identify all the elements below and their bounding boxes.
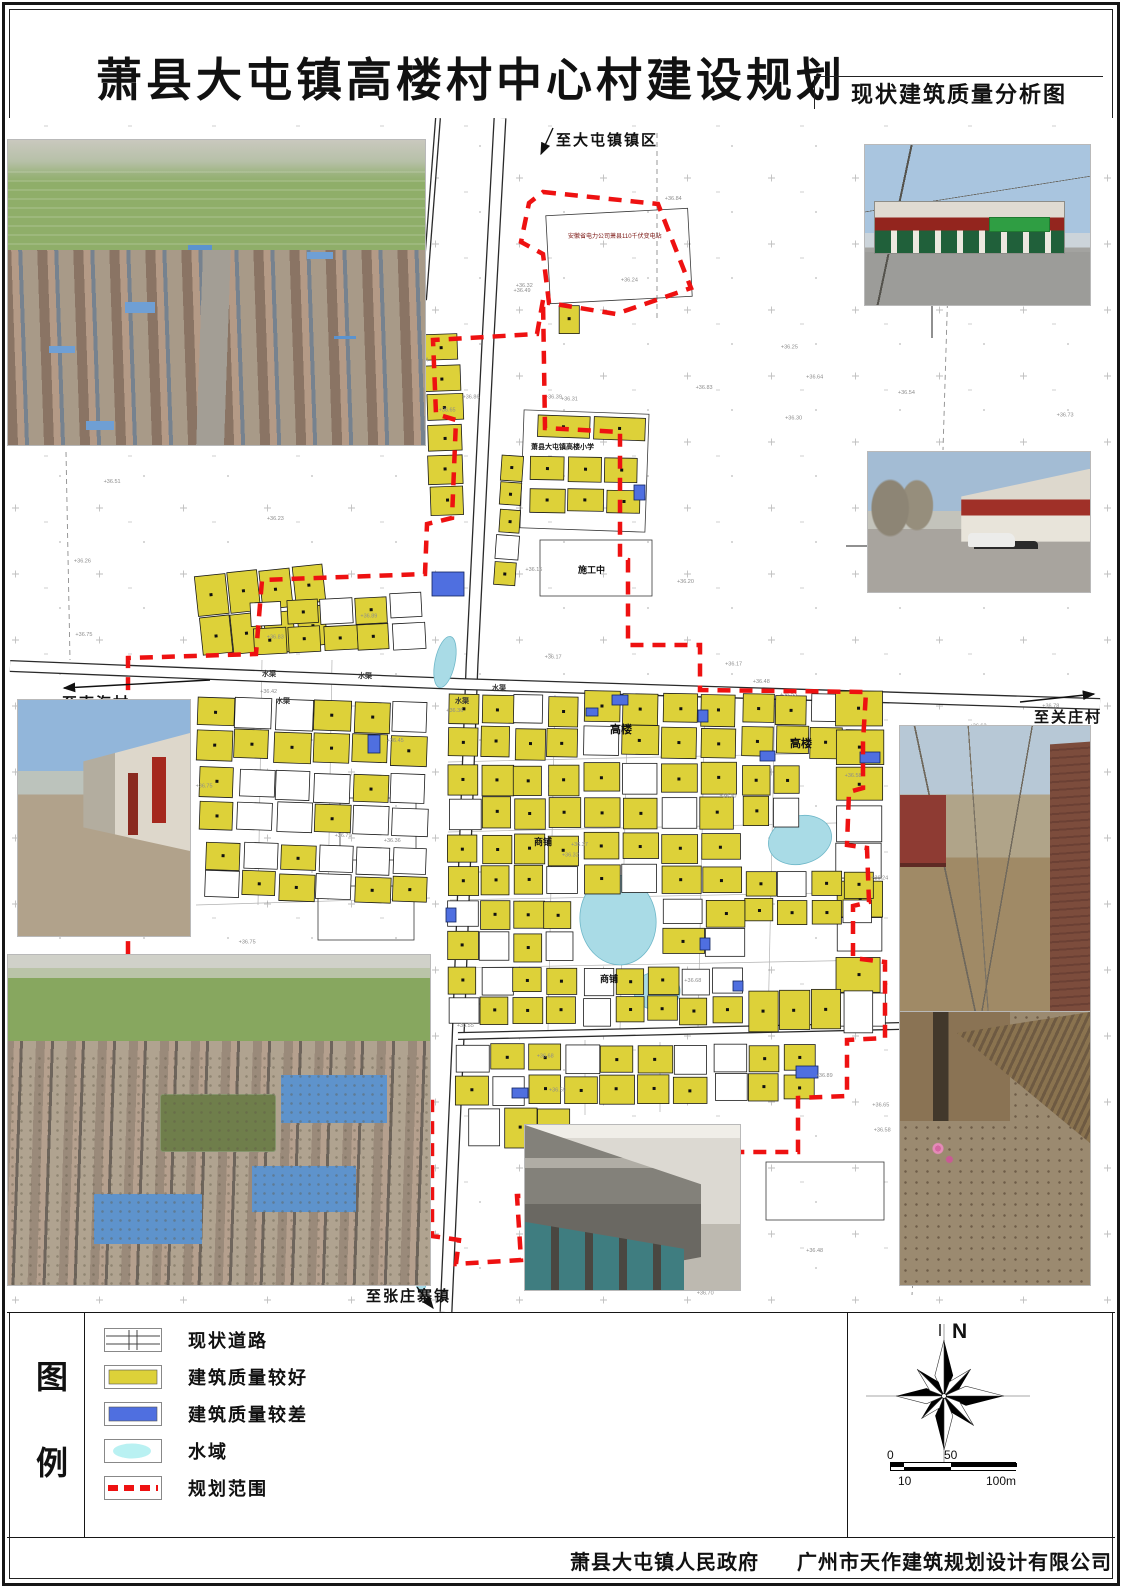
svg-text:+36.70: +36.70 bbox=[697, 1291, 714, 1297]
svg-text:+36.42: +36.42 bbox=[260, 689, 277, 695]
svg-text:水渠: 水渠 bbox=[262, 669, 277, 678]
north-label: N bbox=[952, 1320, 967, 1344]
legend-item-boundary: 规划范围 bbox=[104, 1474, 524, 1502]
legend-items: 现状道路建筑质量较好建筑质量较差水域规划范围 bbox=[104, 1326, 524, 1511]
scale-bar-segments bbox=[890, 1462, 1016, 1471]
legend-symbol-road bbox=[104, 1328, 162, 1352]
svg-text:+36.75: +36.75 bbox=[196, 783, 213, 789]
svg-text:安徽省电力公司萧县110千伏变电站: 安徽省电力公司萧县110千伏变电站 bbox=[568, 232, 662, 240]
svg-text:+36.30: +36.30 bbox=[719, 793, 736, 799]
svg-text:+36.49: +36.49 bbox=[514, 288, 531, 294]
legend-item-water: 水域 bbox=[104, 1437, 524, 1465]
svg-text:+36.17: +36.17 bbox=[545, 654, 562, 660]
svg-text:+36.64: +36.64 bbox=[806, 374, 823, 380]
svg-text:+36.83: +36.83 bbox=[696, 385, 713, 391]
svg-text:+36.30: +36.30 bbox=[785, 415, 802, 421]
compass-rose bbox=[848, 1318, 1048, 1466]
svg-text:+36.54: +36.54 bbox=[898, 390, 915, 396]
svg-text:+36.23: +36.23 bbox=[267, 516, 284, 522]
svg-text:水渠: 水渠 bbox=[492, 683, 507, 692]
legend-band-top-line bbox=[7, 1312, 1115, 1313]
svg-text:+36.65: +36.65 bbox=[872, 1103, 889, 1109]
svg-text:+36.36: +36.36 bbox=[384, 838, 401, 844]
svg-text:至张庄寨镇: 至张庄寨镇 bbox=[366, 1287, 451, 1305]
legend-item-road: 现状道路 bbox=[104, 1326, 524, 1354]
sheet-subtitle: 现状建筑质量分析图 bbox=[851, 77, 1067, 109]
svg-text:+36.89: +36.89 bbox=[816, 1073, 833, 1079]
svg-text:+36.58: +36.58 bbox=[874, 1128, 891, 1134]
svg-text:+36.48: +36.48 bbox=[806, 1248, 823, 1254]
svg-text:+36.25: +36.25 bbox=[781, 344, 798, 350]
legend-label-good: 建筑质量较好 bbox=[188, 1364, 308, 1390]
scale-bar: 0 50 10 100m bbox=[890, 1448, 1020, 1488]
svg-text:至关庄村: 至关庄村 bbox=[1034, 708, 1102, 726]
svg-text:+36.37: +36.37 bbox=[571, 842, 588, 848]
svg-text:+36.36: +36.36 bbox=[446, 708, 463, 714]
scale-segment bbox=[891, 1467, 904, 1471]
svg-text:施工中: 施工中 bbox=[578, 564, 605, 575]
svg-text:+36.73: +36.73 bbox=[1057, 412, 1074, 418]
svg-text:商铺: 商铺 bbox=[600, 973, 618, 984]
svg-text:+36.68: +36.68 bbox=[684, 978, 701, 984]
svg-text:+36.20: +36.20 bbox=[677, 579, 694, 585]
photo-street-market-west bbox=[18, 700, 190, 936]
svg-text:+36.39: +36.39 bbox=[545, 394, 562, 400]
scale-segment bbox=[904, 1467, 951, 1471]
svg-text:至大屯镇镇区: 至大屯镇镇区 bbox=[556, 131, 658, 149]
scale-50: 50 bbox=[944, 1448, 957, 1462]
subtitle-box: 现状建筑质量分析图 bbox=[814, 76, 1103, 109]
scale-10: 10 bbox=[898, 1474, 911, 1488]
footer-government-name: 萧县大屯镇人民政府 bbox=[570, 1546, 759, 1575]
svg-text:水渠: 水渠 bbox=[358, 671, 373, 680]
svg-text:+36.24: +36.24 bbox=[871, 875, 888, 881]
legend-label-water: 水域 bbox=[188, 1438, 228, 1464]
scale-0: 0 bbox=[887, 1448, 894, 1462]
legend-title-divider bbox=[84, 1312, 85, 1537]
photo-aerial-village-pond bbox=[8, 955, 430, 1285]
photo-alley-trees bbox=[900, 726, 1090, 1012]
footer-design-firm-name: 广州市天作建筑规划设计有限公司 bbox=[797, 1546, 1112, 1575]
svg-text:+36.75: +36.75 bbox=[239, 939, 256, 945]
page-title: 萧县大屯镇高楼村中心村建设规划 bbox=[96, 44, 846, 110]
legend-char-tu: 图 bbox=[26, 1352, 78, 1398]
svg-text:+36.83: +36.83 bbox=[267, 634, 284, 640]
legend-item-poor: 建筑质量较差 bbox=[104, 1400, 524, 1428]
svg-text:水渠: 水渠 bbox=[276, 696, 291, 705]
photo-street-shops-north bbox=[865, 145, 1090, 305]
legend-item-good: 建筑质量较好 bbox=[104, 1363, 524, 1391]
photo-warehouse-row bbox=[525, 1125, 740, 1290]
svg-text:+36.51: +36.51 bbox=[104, 479, 121, 485]
svg-text:+36.48: +36.48 bbox=[753, 679, 770, 685]
svg-text:+36.58: +36.58 bbox=[845, 773, 862, 779]
svg-text:+36.84: +36.84 bbox=[665, 196, 682, 202]
svg-text:+36.16: +36.16 bbox=[525, 567, 542, 573]
photo-street-shops-east bbox=[868, 452, 1090, 592]
legend-symbol-poor bbox=[104, 1402, 162, 1426]
svg-text:+36.55: +36.55 bbox=[457, 1023, 474, 1029]
svg-text:+36.75: +36.75 bbox=[75, 632, 92, 638]
legend-symbol-boundary bbox=[104, 1476, 162, 1500]
legend-symbol-water bbox=[104, 1439, 162, 1463]
svg-text:水渠: 水渠 bbox=[455, 696, 470, 705]
svg-text:+36.59: +36.59 bbox=[549, 1088, 566, 1094]
plan-sheet: 萧县大屯镇高楼村中心村建设规划 现状建筑质量分析图 +36.74+36.32+3… bbox=[0, 0, 1122, 1588]
svg-text:+36.68: +36.68 bbox=[537, 1054, 554, 1060]
svg-text:+36.89: +36.89 bbox=[360, 614, 377, 620]
footer-bar: 萧县大屯镇人民政府 广州市天作建筑规划设计有限公司 bbox=[7, 1537, 1115, 1578]
legend-symbol-good bbox=[104, 1365, 162, 1389]
svg-text:+36.24: +36.24 bbox=[621, 278, 638, 284]
svg-text:+36.26: +36.26 bbox=[74, 558, 91, 564]
svg-text:商铺: 商铺 bbox=[534, 836, 552, 847]
svg-text:+36.32: +36.32 bbox=[562, 853, 579, 859]
legend-char-li: 例 bbox=[26, 1438, 78, 1484]
photo-ruined-house bbox=[900, 1012, 1090, 1285]
photo-aerial-main-street bbox=[8, 140, 425, 445]
svg-text:萧县大屯镇高楼小学: 萧县大屯镇高楼小学 bbox=[531, 442, 594, 451]
svg-text:+36.17: +36.17 bbox=[725, 662, 742, 668]
legend-label-poor: 建筑质量较差 bbox=[188, 1401, 308, 1427]
svg-text:+36.86: +36.86 bbox=[463, 394, 480, 400]
legend-label-road: 现状道路 bbox=[188, 1327, 268, 1353]
scale-segment bbox=[951, 1467, 1017, 1471]
legend-label-boundary: 规划范围 bbox=[188, 1475, 268, 1501]
scale-100m: 100m bbox=[986, 1474, 1016, 1488]
svg-text:+36.31: +36.31 bbox=[561, 396, 578, 402]
svg-text:高楼: 高楼 bbox=[790, 736, 812, 750]
svg-text:高楼: 高楼 bbox=[610, 722, 632, 736]
svg-text:+36.79: +36.79 bbox=[335, 833, 352, 839]
svg-text:+36.45: +36.45 bbox=[387, 738, 404, 744]
svg-text:+36.65: +36.65 bbox=[439, 407, 456, 413]
